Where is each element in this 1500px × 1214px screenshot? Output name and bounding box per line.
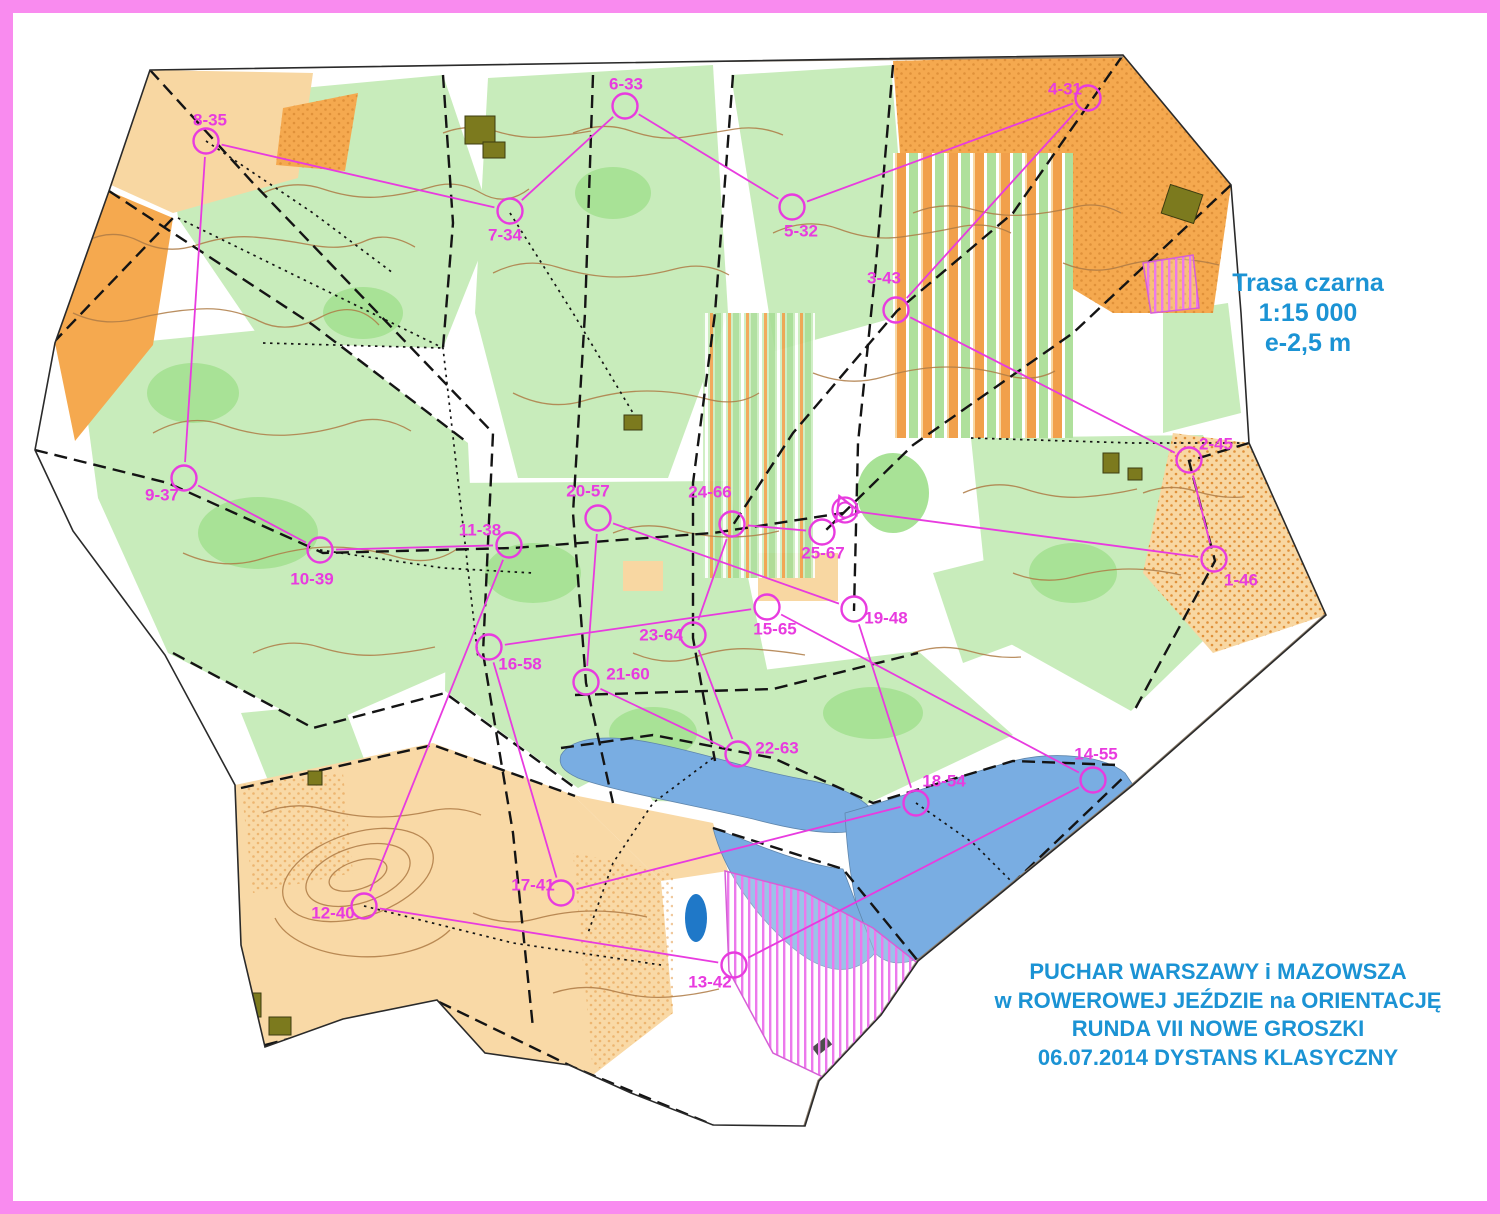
control-label-16-58: 16-58 bbox=[498, 655, 541, 674]
orienteering-map-sheet: 1-462-453-434-315-326-337-348-359-3710-3… bbox=[0, 0, 1500, 1214]
control-label-3-43: 3-43 bbox=[867, 269, 901, 288]
control-label-13-42: 13-42 bbox=[688, 973, 731, 992]
event-line-4: 06.07.2014 DYSTANS KLASYCZNY bbox=[963, 1044, 1473, 1073]
control-label-2-45: 2-45 bbox=[1199, 435, 1233, 454]
control-label-24-66: 24-66 bbox=[688, 483, 731, 502]
control-label-21-60: 21-60 bbox=[606, 665, 649, 684]
event-line-1: PUCHAR WARSZAWY i MAZOWSZA bbox=[963, 958, 1473, 987]
control-label-4-31: 4-31 bbox=[1048, 80, 1082, 99]
control-label-20-57: 20-57 bbox=[566, 482, 609, 501]
control-label-19-48: 19-48 bbox=[864, 609, 907, 628]
control-label-14-55: 14-55 bbox=[1074, 745, 1117, 764]
control-label-15-65: 15-65 bbox=[753, 620, 796, 639]
plantation-stripes-2 bbox=[703, 313, 815, 578]
control-label-10-39: 10-39 bbox=[290, 570, 333, 589]
route-name: Trasa czarna bbox=[1103, 268, 1500, 298]
control-label-6-33: 6-33 bbox=[609, 75, 643, 94]
event-title-box: PUCHAR WARSZAWY i MAZOWSZA w ROWEROWEJ J… bbox=[963, 958, 1473, 1072]
map-info-box: Trasa czarna 1:15 000 e-2,5 m bbox=[1103, 268, 1500, 358]
control-label-7-34: 7-34 bbox=[488, 226, 523, 245]
control-label-25-67: 25-67 bbox=[801, 544, 844, 563]
small-pond bbox=[685, 894, 707, 942]
map-scale: 1:15 000 bbox=[1103, 298, 1500, 328]
control-label-17-41: 17-41 bbox=[511, 876, 554, 895]
event-line-3: RUNDA VII NOWE GROSZKI bbox=[963, 1015, 1473, 1044]
control-label-18-54: 18-54 bbox=[922, 772, 966, 791]
event-line-2: w ROWEROWEJ JEŹDZIE na ORIENTACJĘ bbox=[963, 987, 1473, 1016]
control-label-8-35: 8-35 bbox=[193, 111, 227, 130]
control-label-5-32: 5-32 bbox=[784, 222, 818, 241]
control-label-22-63: 22-63 bbox=[755, 739, 798, 758]
control-label-1-46: 1-46 bbox=[1224, 571, 1258, 590]
control-label-23-64: 23-64 bbox=[639, 626, 683, 645]
contour-interval: e-2,5 m bbox=[1103, 328, 1500, 358]
control-label-11-38: 11-38 bbox=[459, 521, 502, 540]
control-label-9-37: 9-37 bbox=[145, 486, 179, 505]
control-label-12-40: 12-40 bbox=[311, 904, 354, 923]
